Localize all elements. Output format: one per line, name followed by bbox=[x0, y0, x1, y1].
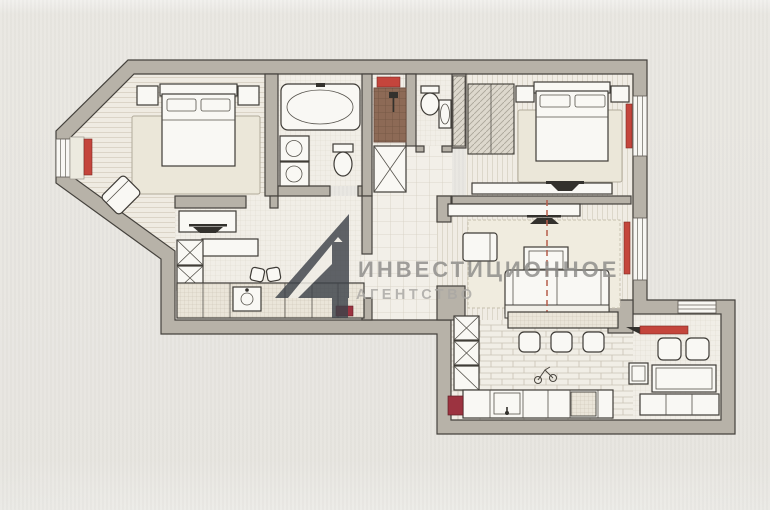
wc-door-jamb-left bbox=[416, 146, 424, 152]
dining-counter bbox=[463, 390, 613, 418]
floor-plan-svg: ИНВЕСТИЦИОННОЕ АГЕНТСТВО bbox=[0, 0, 770, 510]
dishwasher bbox=[571, 392, 596, 416]
counter-stool-b bbox=[266, 267, 281, 282]
nightstand2-right bbox=[611, 86, 629, 102]
wall-bathroom-bottom-b bbox=[358, 186, 362, 196]
floor-plan-photo: ИНВЕСТИЦИОННОЕ АГЕНТСТВО bbox=[0, 0, 770, 510]
nightstand-left bbox=[137, 86, 158, 105]
windowsill bbox=[70, 137, 84, 179]
kitchen-shelf bbox=[202, 239, 258, 256]
wall-hall-kitchen-upper bbox=[362, 196, 372, 254]
kitchen-sink bbox=[233, 287, 261, 311]
bar-stool-2 bbox=[551, 332, 572, 352]
bathtub bbox=[281, 83, 360, 130]
red-cabinet bbox=[448, 396, 463, 415]
toilet-bathroom bbox=[333, 144, 353, 176]
dryer bbox=[280, 162, 309, 186]
vent-shaft-hatch bbox=[453, 76, 465, 146]
balcony-table bbox=[652, 365, 716, 392]
wall-bedroom1-kitchen-b bbox=[270, 196, 278, 208]
bar-counter bbox=[508, 312, 618, 328]
wall-bedroom1-bathroom bbox=[265, 74, 278, 196]
watermark-text-line2: АГЕНТСТВО bbox=[356, 287, 476, 303]
wall-bathroom-bottom-a bbox=[278, 186, 330, 196]
counter-stool-a bbox=[250, 267, 265, 282]
entrance-lintel bbox=[377, 77, 400, 87]
wc-door-jamb-right bbox=[442, 146, 452, 152]
nightstand2-left bbox=[516, 86, 534, 102]
radiator-bedroom2 bbox=[626, 104, 632, 148]
washing-machine bbox=[280, 136, 309, 161]
bed-bedroom2 bbox=[534, 82, 610, 161]
hall-closet bbox=[374, 146, 406, 192]
radiator-living bbox=[624, 222, 630, 274]
dining-appliance-column bbox=[454, 316, 479, 390]
bedroom2-window bbox=[626, 96, 647, 156]
tv-unit-bedroom2 bbox=[472, 181, 612, 194]
radiator-bedroom1 bbox=[84, 139, 92, 175]
balcony-chair-2 bbox=[686, 338, 709, 360]
wall-bedroom2-living bbox=[452, 196, 631, 204]
wardrobe-bedroom2 bbox=[468, 84, 514, 154]
wall-hung-toilet bbox=[421, 86, 439, 115]
wall-entry-wc bbox=[406, 74, 416, 146]
washbasin bbox=[439, 100, 451, 128]
watermark-text-line1: ИНВЕСТИЦИОННОЕ bbox=[358, 257, 619, 282]
balcony-window-band bbox=[678, 301, 716, 313]
balcony-chair-1 bbox=[658, 338, 681, 360]
bay-window bbox=[56, 137, 92, 179]
nightstand-right bbox=[238, 86, 259, 105]
bed-bedroom1 bbox=[160, 84, 237, 166]
balcony-bench bbox=[640, 394, 719, 415]
entry-hall bbox=[374, 77, 406, 192]
balcony-cabinet bbox=[629, 363, 648, 384]
wall-bathroom-entry bbox=[362, 74, 372, 196]
kitchen-upper-unit bbox=[179, 211, 236, 233]
wall-bedroom1-kitchen-a bbox=[175, 196, 246, 208]
doormat bbox=[374, 88, 406, 142]
living-window bbox=[624, 218, 647, 280]
bar-stool-3 bbox=[583, 332, 604, 352]
bar-stool-1 bbox=[519, 332, 540, 352]
